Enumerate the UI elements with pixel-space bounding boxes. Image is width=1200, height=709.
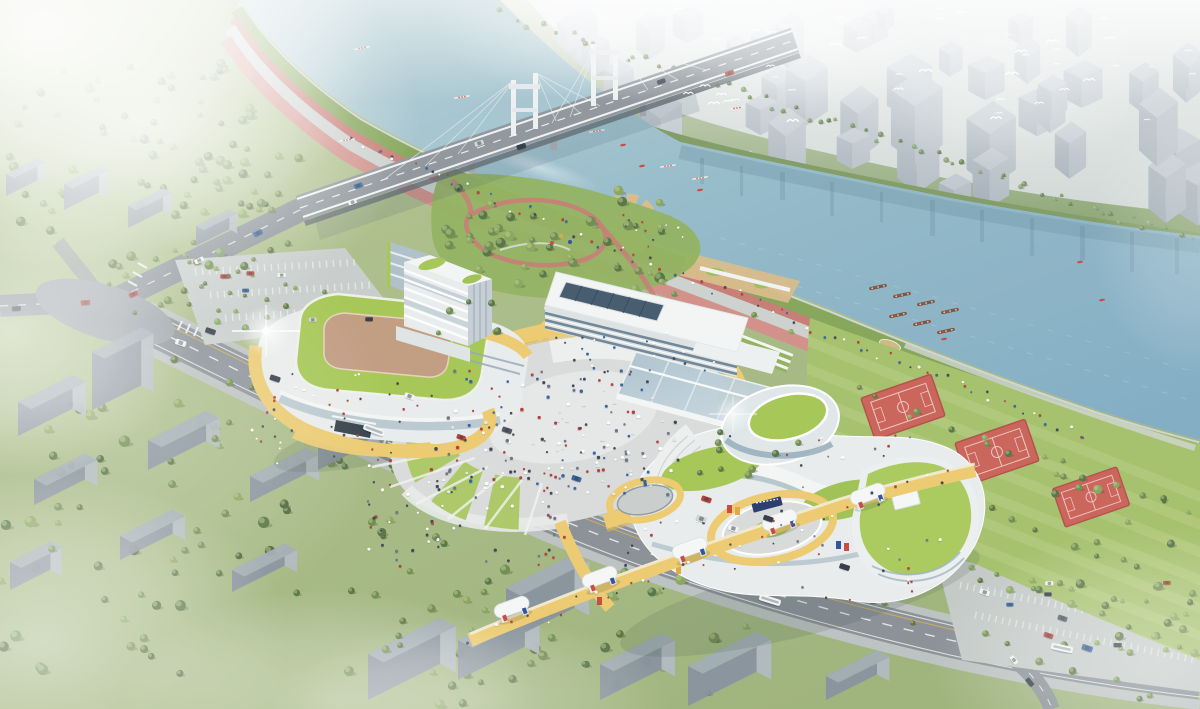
tree [514, 279, 526, 288]
person [486, 507, 489, 510]
tree [1060, 474, 1068, 480]
person [374, 515, 378, 519]
massing-block-front [10, 542, 51, 590]
tree [443, 397, 452, 404]
gym-entrance [334, 420, 372, 438]
south-gallery [470, 464, 975, 640]
massing-block-top [18, 375, 86, 410]
tree [671, 66, 677, 70]
tree [454, 184, 465, 193]
person [647, 580, 650, 583]
central-plaza [358, 294, 788, 608]
person [800, 464, 803, 467]
massing-block-top [368, 618, 456, 663]
tree [200, 208, 210, 216]
person [565, 220, 568, 223]
tree [807, 118, 813, 123]
person [564, 342, 567, 345]
car [309, 318, 317, 323]
tree [1006, 586, 1016, 594]
person [860, 349, 864, 353]
person [940, 481, 944, 485]
shell [589, 129, 605, 133]
tree [172, 248, 178, 253]
tree [180, 201, 190, 209]
person [558, 410, 561, 413]
tree [153, 256, 161, 262]
tree [144, 182, 152, 189]
tree [969, 565, 977, 571]
person [614, 458, 617, 461]
boats-on-river [339, 46, 1105, 341]
top-haze [0, 0, 1200, 100]
tree [6, 153, 16, 161]
person [641, 579, 644, 582]
person [649, 485, 652, 488]
person [682, 272, 684, 274]
tree [1186, 510, 1192, 515]
person [926, 474, 929, 477]
massing-block-front [600, 633, 662, 700]
person [889, 352, 892, 355]
tree [156, 138, 164, 144]
tree [216, 570, 224, 577]
bridge-piers [468, 96, 646, 172]
gym-east-glazing [468, 352, 524, 374]
person [627, 435, 630, 438]
tree [617, 197, 629, 207]
complex-lower-band [652, 508, 968, 560]
person [624, 458, 628, 462]
person [600, 438, 604, 442]
tree [586, 216, 599, 226]
west-road [0, 300, 118, 306]
tree [1170, 613, 1180, 621]
person [780, 509, 784, 513]
tree [719, 311, 725, 315]
person [367, 500, 370, 503]
person [561, 474, 565, 478]
massing-block-side [73, 375, 86, 416]
tree [10, 630, 24, 641]
person [681, 563, 684, 566]
plaza-grass-wedges [418, 335, 701, 526]
tree [132, 310, 138, 315]
tree [85, 84, 97, 93]
far-shore [0, 0, 1200, 709]
tree [550, 232, 561, 240]
person [436, 480, 439, 483]
tree [1189, 236, 1194, 240]
library-window-bands [545, 313, 737, 374]
tree [25, 516, 40, 527]
person [831, 515, 834, 518]
person [801, 586, 804, 589]
car [204, 327, 216, 336]
tree [399, 617, 408, 624]
person [612, 401, 616, 405]
tree [98, 403, 110, 412]
fog [120, 588, 540, 709]
person [579, 389, 583, 393]
tree [291, 334, 300, 341]
tree [648, 271, 654, 276]
tree [275, 152, 285, 160]
car [1024, 677, 1034, 688]
tree [1101, 212, 1105, 215]
tree [280, 462, 288, 468]
person [540, 370, 543, 373]
person [658, 447, 662, 451]
tree [49, 452, 60, 460]
tree [530, 643, 544, 654]
tree [488, 228, 498, 236]
tree [959, 159, 966, 165]
massing-block-side [99, 166, 107, 197]
person [573, 359, 576, 362]
boulevard-road [150, 327, 1200, 682]
tree [478, 679, 486, 685]
person [465, 378, 468, 381]
tree [283, 506, 293, 514]
tree [263, 202, 270, 207]
bird [1060, 88, 1069, 90]
person [455, 459, 458, 462]
person [586, 470, 589, 473]
tree [500, 564, 513, 574]
person [566, 403, 570, 407]
pier-teeth-ring [604, 200, 652, 248]
person [619, 369, 623, 373]
tree [592, 223, 600, 229]
bird [1054, 63, 1061, 64]
tree [251, 189, 259, 195]
tree [902, 536, 911, 543]
car [354, 182, 364, 190]
tree [818, 120, 824, 125]
tree [483, 247, 495, 256]
tree [353, 337, 361, 343]
tree [627, 59, 631, 62]
drum-building [713, 374, 848, 477]
person [554, 422, 558, 426]
tree [368, 518, 378, 526]
plaza-step-ring-outer [375, 307, 745, 554]
person [938, 538, 942, 542]
campus [255, 242, 988, 680]
person [586, 353, 590, 357]
person [555, 337, 558, 340]
person [378, 151, 381, 154]
tree [213, 179, 221, 186]
boulevard-tree-rows [164, 296, 1184, 701]
person [544, 553, 548, 557]
gym-yellow-apron [292, 424, 436, 457]
person [553, 533, 557, 537]
person [330, 426, 333, 429]
tree [932, 487, 941, 494]
person [458, 458, 461, 461]
riverside-promenade [226, 3, 1199, 480]
person [641, 452, 645, 456]
tree [907, 414, 913, 419]
tree [495, 224, 505, 232]
tree [149, 151, 160, 160]
complex-white-band [648, 465, 948, 498]
tree [614, 186, 627, 196]
tree [623, 220, 636, 230]
tree [1099, 611, 1107, 617]
library-roof [545, 272, 748, 352]
person [470, 476, 473, 479]
person [447, 453, 451, 457]
tree [395, 633, 403, 639]
boulevard-edge-line [150, 342, 1200, 697]
tree [129, 136, 138, 143]
bird [788, 89, 796, 90]
tree [226, 420, 234, 426]
tree [466, 299, 473, 304]
person [431, 522, 435, 526]
tree [568, 258, 580, 267]
tree [31, 563, 44, 573]
tree [108, 259, 120, 268]
person [483, 487, 486, 490]
person [458, 524, 461, 527]
gym-yellow-canopy [255, 346, 490, 452]
tree [539, 270, 548, 277]
tree [67, 461, 77, 469]
tree [643, 54, 650, 59]
person [549, 492, 553, 496]
person [273, 396, 276, 399]
person [357, 373, 360, 376]
person [504, 460, 507, 463]
massing-block-front [826, 651, 877, 701]
person [642, 455, 646, 459]
tree [703, 79, 710, 84]
person [415, 162, 417, 164]
massing-block-top [458, 607, 539, 648]
bird [920, 69, 932, 71]
gate [670, 535, 711, 568]
west-parking-lot [175, 248, 400, 345]
person [643, 480, 647, 484]
car [725, 69, 735, 77]
tree [46, 226, 57, 235]
person [493, 548, 497, 552]
aerial-scene [0, 0, 1200, 709]
person [377, 459, 380, 462]
oval-courtyard-small [606, 474, 684, 526]
tree [107, 282, 113, 286]
tree [214, 266, 220, 271]
tree [187, 302, 193, 307]
tree [820, 344, 826, 348]
person [925, 539, 928, 542]
tree [148, 653, 157, 660]
tree [233, 309, 239, 314]
person [548, 622, 550, 624]
massing-block-front [232, 544, 285, 592]
gym-glass-band [280, 398, 500, 426]
tree [228, 291, 234, 296]
flare [232, 305, 300, 357]
massing-block-front [148, 411, 206, 470]
person [573, 487, 577, 491]
tree [455, 649, 466, 658]
person [818, 439, 820, 441]
person [909, 436, 911, 438]
massing-block-top [6, 158, 46, 178]
tree [171, 210, 183, 219]
stay-cables [385, 44, 706, 179]
person [553, 517, 557, 521]
person [546, 451, 549, 454]
person [582, 403, 586, 407]
parking-stall-lines [195, 262, 385, 318]
massing-block-top [34, 454, 97, 486]
tree [716, 83, 722, 87]
far-bank-reflection [680, 152, 1200, 246]
person [389, 459, 393, 463]
person [472, 410, 475, 413]
tree [1075, 484, 1084, 491]
tree [881, 600, 889, 606]
person [601, 468, 605, 472]
tree [293, 286, 299, 291]
person [596, 464, 600, 468]
parking-stall-lines [960, 585, 1195, 660]
cityblock [636, 10, 665, 59]
tree [1118, 646, 1125, 651]
stair-contours [656, 436, 701, 500]
background [0, 0, 1200, 709]
context-massing-blocks [6, 158, 889, 706]
person [542, 381, 546, 385]
kayak [697, 188, 703, 191]
person [553, 426, 556, 429]
tree [1054, 472, 1061, 478]
tree [264, 171, 273, 178]
person [530, 373, 534, 377]
tree [787, 508, 795, 514]
car [516, 143, 527, 152]
car [220, 274, 228, 279]
tree [459, 699, 469, 707]
person [780, 524, 783, 527]
tree [242, 324, 252, 331]
round-wood-deck [878, 337, 902, 353]
tree [441, 540, 450, 547]
tree [497, 7, 504, 12]
person [846, 506, 849, 509]
person [273, 435, 276, 438]
massing-block-side [757, 632, 772, 680]
tree [1032, 527, 1039, 532]
tree [1117, 220, 1122, 224]
riverside-track-outer [226, 40, 1186, 480]
shell [729, 106, 745, 110]
person [631, 411, 635, 415]
person [729, 543, 732, 546]
person [866, 349, 868, 351]
tree [48, 546, 57, 553]
person [417, 512, 420, 515]
tree [611, 680, 624, 690]
kayak [1099, 298, 1105, 301]
tree [741, 87, 748, 93]
person [546, 514, 550, 518]
tree [168, 84, 177, 91]
person [986, 391, 989, 394]
boulevard-sidewalk-lower [150, 350, 1200, 705]
person [556, 449, 559, 452]
tree [119, 436, 134, 447]
cityblock [642, 91, 682, 165]
tree [1151, 633, 1160, 640]
person [986, 399, 989, 402]
rooftop-court [324, 313, 452, 377]
complex-pedestrians [624, 432, 944, 601]
tree [1008, 516, 1016, 523]
bus [362, 423, 385, 438]
plaza-crowd [429, 369, 680, 497]
tree [509, 469, 516, 474]
tree [541, 21, 548, 27]
person [612, 492, 616, 496]
car [456, 434, 466, 442]
tree [229, 141, 239, 149]
tree [168, 480, 178, 488]
cityblock [1177, 161, 1200, 226]
person [781, 308, 784, 311]
person [606, 444, 610, 448]
person [772, 311, 775, 314]
cityblock [1156, 128, 1200, 192]
person [372, 516, 376, 520]
fog [1090, 100, 1200, 380]
person [849, 599, 852, 602]
tree [481, 589, 489, 596]
person [1043, 423, 1047, 427]
person [593, 339, 596, 342]
person [563, 440, 566, 443]
cityblock [1008, 13, 1032, 45]
tree [658, 228, 667, 235]
person [276, 377, 280, 381]
person [620, 383, 624, 387]
person [531, 442, 535, 446]
tree [273, 333, 283, 341]
tree [331, 416, 340, 423]
tree [657, 64, 662, 68]
tree [1121, 557, 1128, 563]
fog [430, 0, 810, 104]
tree [55, 520, 63, 526]
bird [837, 16, 845, 17]
boulevard-edge-line [150, 312, 1200, 667]
person [805, 327, 808, 330]
tree [463, 671, 473, 679]
tree [203, 281, 209, 285]
person [548, 516, 552, 520]
cityblock [1066, 6, 1092, 58]
person [604, 405, 608, 409]
tree [1163, 647, 1170, 653]
person [594, 591, 598, 595]
bird [673, 8, 682, 10]
